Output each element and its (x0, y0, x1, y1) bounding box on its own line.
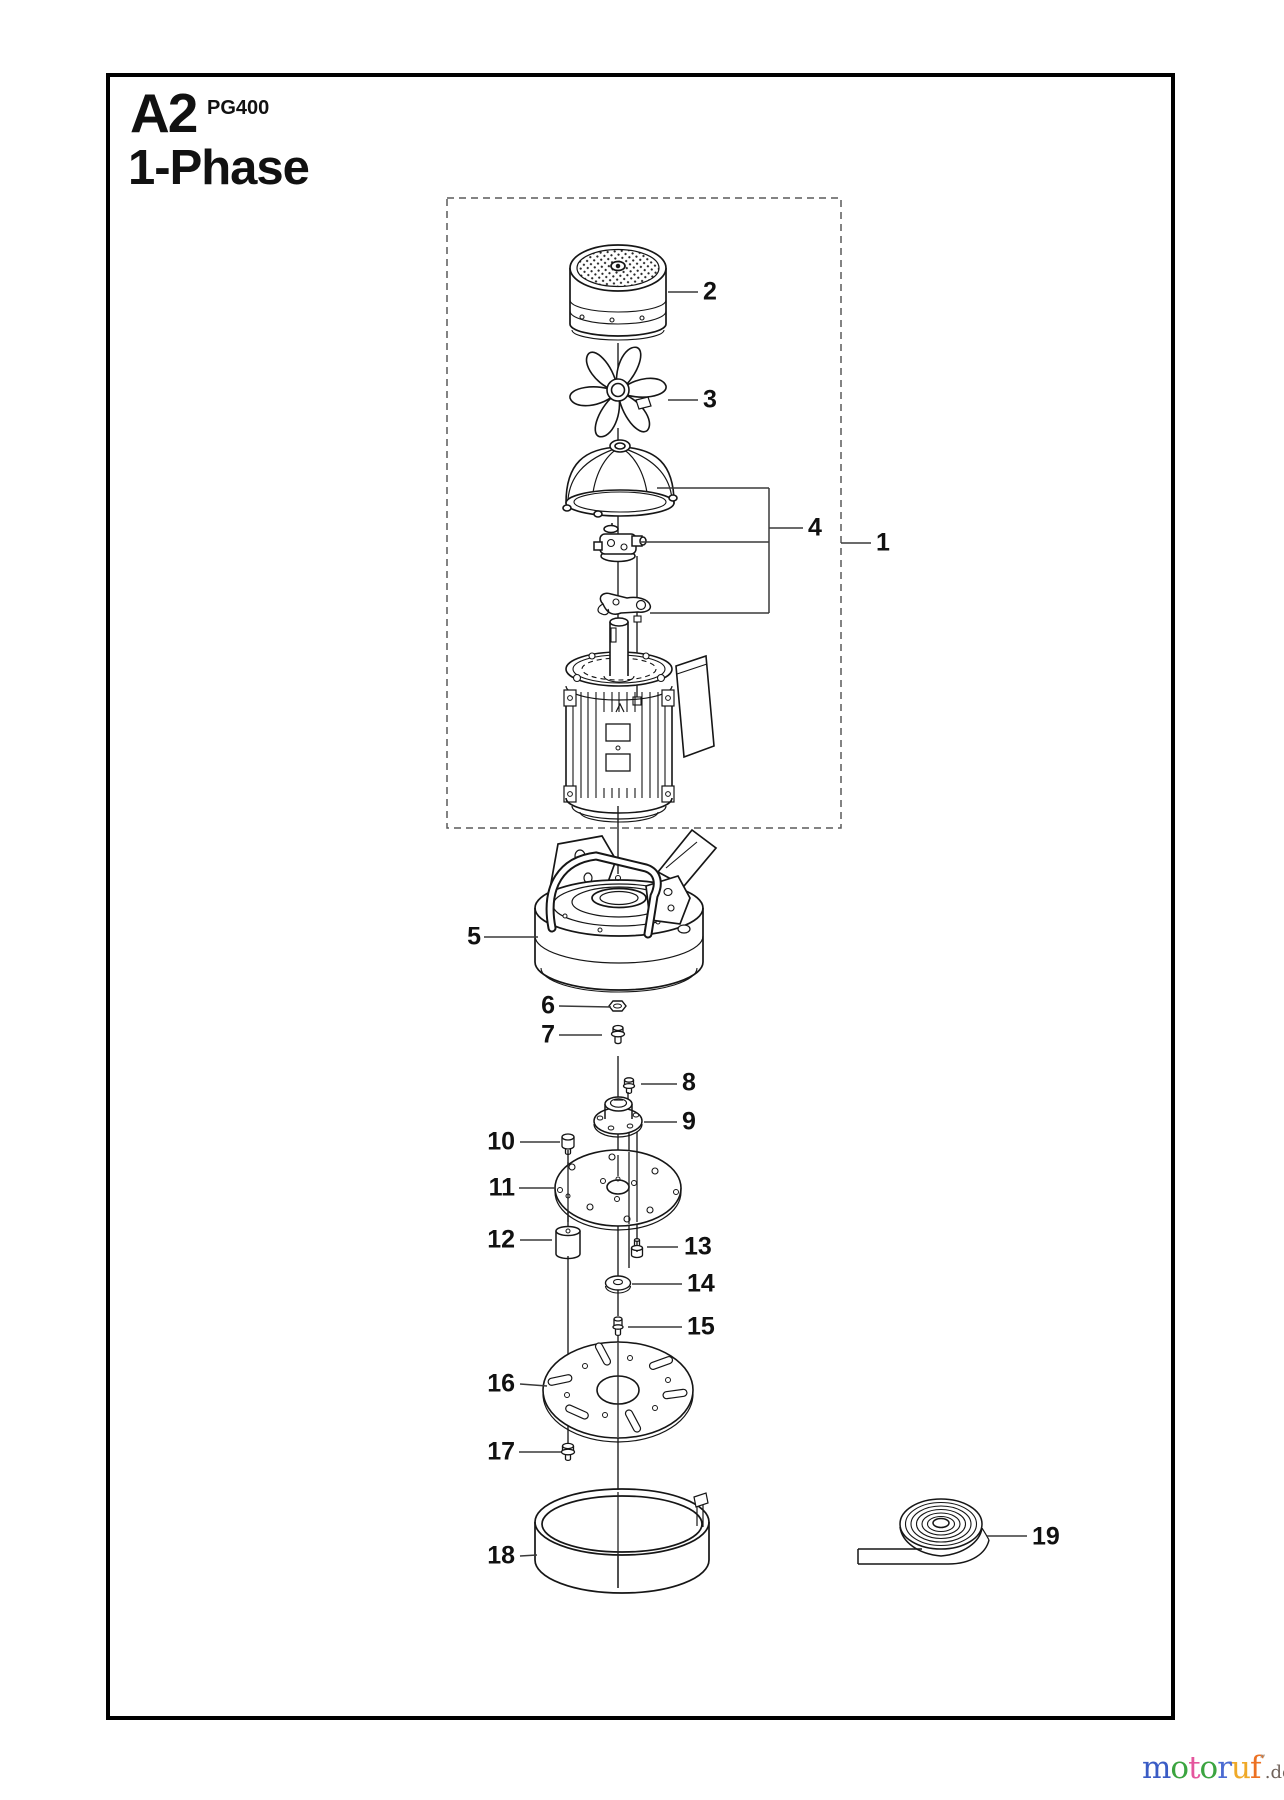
logo-letter: o (1170, 1750, 1188, 1786)
part-label-8: 8 (682, 1071, 696, 1096)
part-label-2: 2 (703, 280, 717, 305)
part-label-10: 10 (487, 1130, 515, 1155)
part-label-3: 3 (703, 388, 717, 413)
part-label-16: 16 (487, 1372, 515, 1397)
logo-letter: m (1142, 1750, 1170, 1786)
part-4-bearing-cover (563, 440, 677, 517)
part-17-screw (562, 1443, 575, 1460)
part-5-clutch-housing (535, 830, 716, 992)
part-9-flange-hub (594, 1097, 642, 1137)
logo-letter: o (1200, 1750, 1218, 1786)
part-label-9: 9 (682, 1110, 696, 1135)
part-label-11: 11 (489, 1176, 515, 1201)
part-7-screw (612, 1026, 625, 1044)
part-label-15: 15 (687, 1315, 715, 1340)
part-label-1: 1 (876, 531, 890, 556)
part-4-bracket (598, 593, 650, 622)
part-8-screw (624, 1078, 635, 1094)
part-label-18: 18 (487, 1544, 515, 1569)
part-label-7: 7 (541, 1023, 555, 1048)
part-label-6: 6 (541, 994, 555, 1019)
part-4-switch (594, 523, 646, 562)
part-label-5: 5 (467, 925, 481, 950)
part-label-14: 14 (687, 1272, 715, 1297)
part-1-electric-motor (564, 618, 714, 822)
part-label-17: 17 (487, 1440, 515, 1465)
part-label-12: 12 (487, 1228, 515, 1253)
part-13-screw (632, 1239, 643, 1258)
logo-letter: u (1231, 1750, 1250, 1786)
part-label-19: 19 (1032, 1525, 1060, 1550)
part-6-nut (609, 1001, 626, 1011)
part-2-fan-cover (570, 245, 666, 340)
part-14-washer (606, 1276, 631, 1293)
part-18-band-ring (535, 1489, 709, 1593)
part-label-13: 13 (684, 1235, 712, 1260)
part-label-4: 4 (808, 516, 822, 541)
logo-domain-suffix: .de (1265, 1762, 1284, 1783)
logo-letter: t (1188, 1750, 1199, 1786)
part-15-screw (613, 1317, 623, 1335)
part-12-buffer (556, 1227, 580, 1259)
part-19-sealing-strip-roll (858, 1499, 989, 1564)
exploded-view-drawing (0, 0, 1284, 1800)
parts-diagram-page: A2 PG400 1-Phase (0, 0, 1284, 1800)
logo-letter: r (1217, 1750, 1231, 1786)
motoruf-watermark-logo[interactable]: motoruf’’.de (1142, 1750, 1284, 1786)
logo-letter: f (1250, 1750, 1260, 1786)
logo-trademark-tick: ’’ (1260, 1753, 1264, 1768)
